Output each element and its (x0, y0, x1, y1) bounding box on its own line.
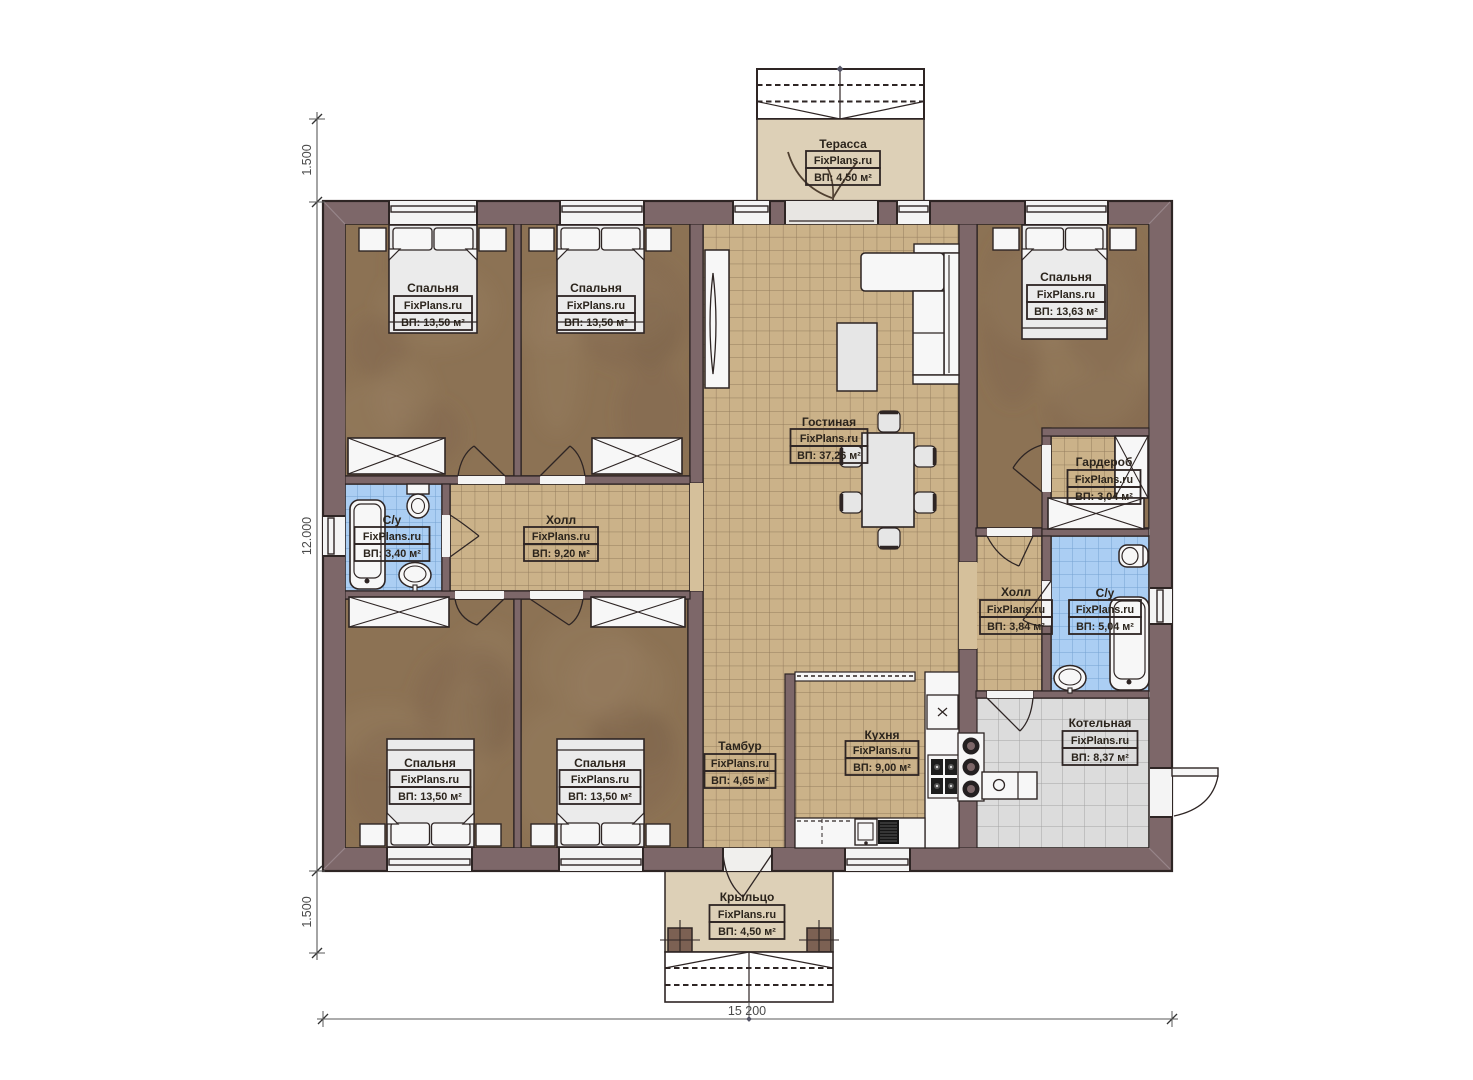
svg-text:Терасса: Терасса (819, 137, 867, 151)
svg-text:FixPlans.ru: FixPlans.ru (814, 155, 872, 167)
svg-text:FixPlans.ru: FixPlans.ru (1076, 604, 1134, 616)
svg-text:ВП: 4,50 м²: ВП: 4,50 м² (814, 172, 872, 184)
svg-text:12.000: 12.000 (300, 517, 314, 555)
svg-text:FixPlans.ru: FixPlans.ru (711, 758, 769, 770)
svg-text:FixPlans.ru: FixPlans.ru (1071, 735, 1129, 747)
svg-text:ВП: 8,37 м²: ВП: 8,37 м² (1071, 752, 1129, 764)
svg-text:Тамбур: Тамбур (718, 739, 762, 753)
svg-text:1.500: 1.500 (300, 896, 314, 927)
svg-text:Холл: Холл (1001, 585, 1031, 599)
svg-text:ВП: 13,50 м²: ВП: 13,50 м² (398, 791, 462, 803)
svg-text:ВП: 13,50 м²: ВП: 13,50 м² (568, 791, 632, 803)
svg-text:ВП: 9,20 м²: ВП: 9,20 м² (532, 548, 590, 560)
svg-text:ВП: 4,50 м²: ВП: 4,50 м² (718, 926, 776, 938)
svg-text:С/у: С/у (383, 513, 402, 527)
svg-text:FixPlans.ru: FixPlans.ru (987, 604, 1045, 616)
svg-text:FixPlans.ru: FixPlans.ru (1075, 474, 1133, 486)
svg-text:ВП: 3,40 м²: ВП: 3,40 м² (363, 548, 421, 560)
svg-text:Кухня: Кухня (864, 728, 899, 742)
svg-text:FixPlans.ru: FixPlans.ru (567, 300, 625, 312)
svg-text:Спальня: Спальня (1040, 270, 1092, 284)
svg-text:FixPlans.ru: FixPlans.ru (853, 745, 911, 757)
svg-text:ВП: 4,65 м²: ВП: 4,65 м² (711, 775, 769, 787)
svg-text:ВП: 13,50 м²: ВП: 13,50 м² (564, 317, 628, 329)
svg-text:ВП: 13,63 м²: ВП: 13,63 м² (1034, 306, 1098, 318)
svg-text:Крыльцо: Крыльцо (720, 890, 775, 904)
svg-text:FixPlans.ru: FixPlans.ru (718, 909, 776, 921)
svg-text:С/у: С/у (1096, 586, 1115, 600)
svg-text:Спальня: Спальня (407, 281, 459, 295)
svg-text:Гардероб: Гардероб (1076, 455, 1133, 469)
svg-text:ВП: 3,04 м²: ВП: 3,04 м² (1075, 491, 1133, 503)
svg-text:FixPlans.ru: FixPlans.ru (1037, 289, 1095, 301)
svg-text:Спальня: Спальня (404, 756, 456, 770)
svg-text:15 200: 15 200 (728, 1004, 766, 1018)
svg-text:FixPlans.ru: FixPlans.ru (401, 774, 459, 786)
svg-text:1.500: 1.500 (300, 144, 314, 175)
svg-text:Спальня: Спальня (574, 756, 626, 770)
svg-text:FixPlans.ru: FixPlans.ru (532, 531, 590, 543)
svg-text:Холл: Холл (546, 513, 576, 527)
svg-text:FixPlans.ru: FixPlans.ru (404, 300, 462, 312)
svg-text:FixPlans.ru: FixPlans.ru (571, 774, 629, 786)
svg-text:FixPlans.ru: FixPlans.ru (800, 433, 858, 445)
svg-text:ВП: 9,00 м²: ВП: 9,00 м² (853, 762, 911, 774)
svg-text:ВП: 5,04 м²: ВП: 5,04 м² (1076, 621, 1134, 633)
svg-text:Гостиная: Гостиная (802, 415, 856, 429)
svg-text:ВП: 3,84 м²: ВП: 3,84 м² (987, 621, 1045, 633)
svg-text:ВП: 37,26 м²: ВП: 37,26 м² (797, 450, 861, 462)
svg-text:Котельная: Котельная (1069, 716, 1132, 730)
svg-text:ВП: 13,50 м²: ВП: 13,50 м² (401, 317, 465, 329)
svg-text:FixPlans.ru: FixPlans.ru (363, 531, 421, 543)
svg-text:Спальня: Спальня (570, 281, 622, 295)
